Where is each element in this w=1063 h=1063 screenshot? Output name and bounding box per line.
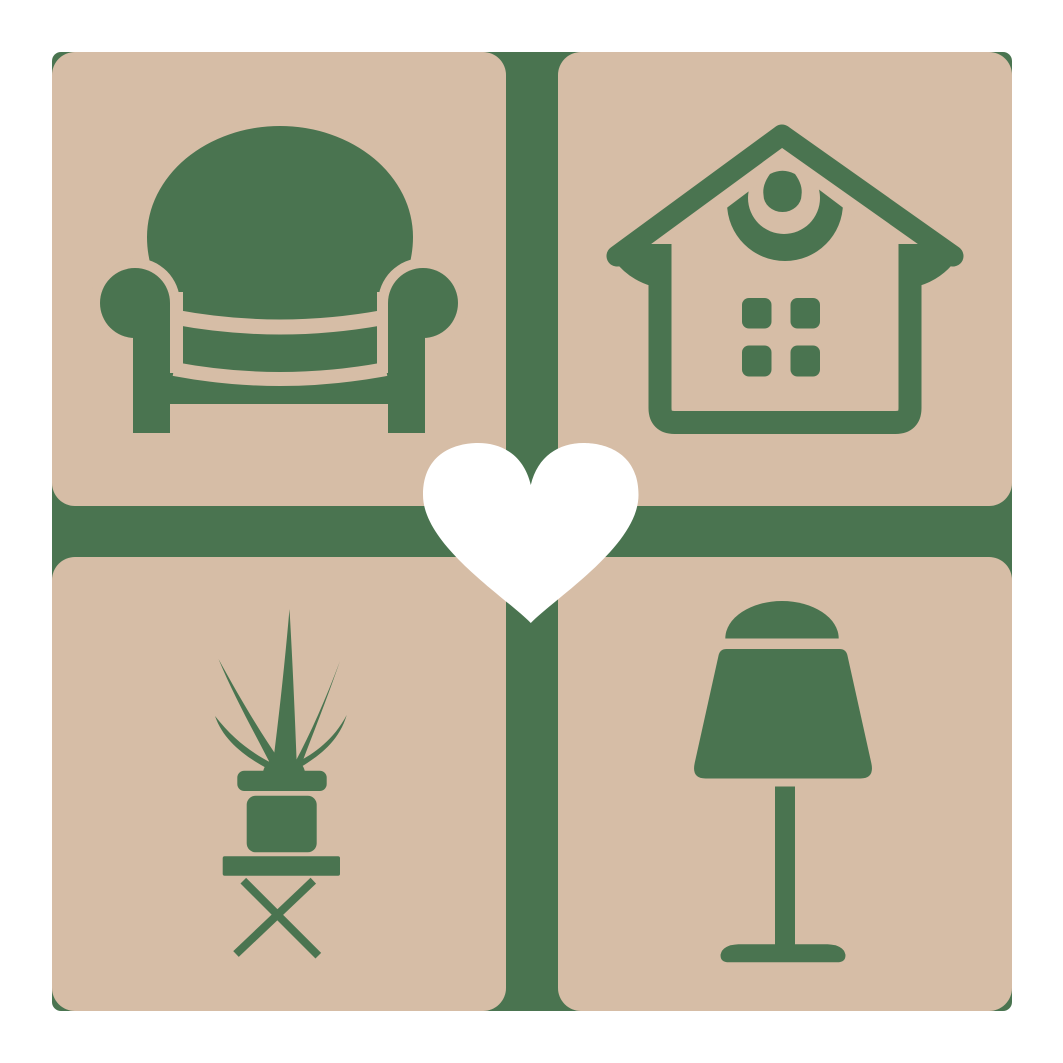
tile-potted-plant xyxy=(52,557,506,1011)
tile-armchair xyxy=(52,52,506,506)
house-icon xyxy=(558,52,1012,506)
potted-plant-icon xyxy=(52,557,506,1011)
logo-grid xyxy=(52,52,1012,1011)
armchair-icon xyxy=(52,52,506,506)
table-lamp-icon xyxy=(558,557,1012,1011)
tile-table-lamp xyxy=(558,557,1012,1011)
logo-stage xyxy=(0,0,1063,1063)
tile-house xyxy=(558,52,1012,506)
